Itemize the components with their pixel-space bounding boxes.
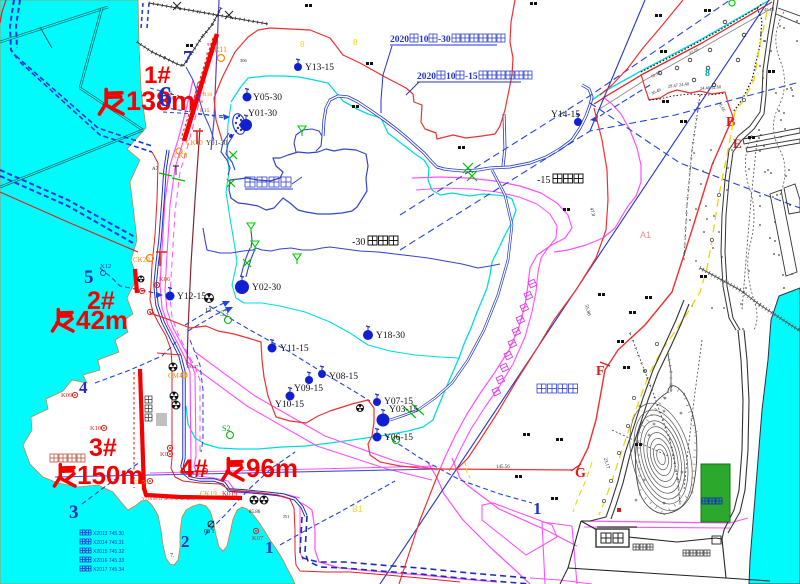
svg-text:-30: -30: [438, 35, 451, 45]
svg-text:K07: K07: [252, 535, 264, 542]
svg-text:X2015 745.32: X2015 745.32: [93, 549, 124, 555]
svg-text:96m: 96m: [246, 453, 298, 483]
svg-text:S2: S2: [222, 424, 230, 433]
svg-text:K09: K09: [61, 392, 72, 399]
svg-text:-15: -15: [537, 175, 550, 186]
svg-text:Y10-15: Y10-15: [275, 400, 304, 410]
svg-text:306: 306: [240, 58, 248, 63]
svg-text:7.: 7.: [170, 553, 175, 559]
svg-text:Y12-15: Y12-15: [177, 292, 206, 302]
svg-text:Y09-15: Y09-15: [294, 384, 323, 394]
svg-text:8: 8: [705, 68, 710, 79]
svg-text:150.37: 150.37: [186, 364, 199, 369]
svg-text:Y06-15: Y06-15: [384, 433, 413, 443]
svg-text:145.56: 145.56: [496, 465, 510, 470]
svg-text:X2014 745.31: X2014 745.31: [93, 540, 124, 546]
svg-text:8: 8: [353, 38, 358, 47]
svg-text:R11: R11: [214, 45, 227, 54]
svg-text:A7: A7: [152, 167, 159, 172]
svg-text:1: 1: [265, 538, 274, 557]
svg-text:B1: B1: [352, 504, 363, 514]
svg-text:10: 10: [446, 72, 456, 82]
svg-text:08 1: 08 1: [204, 529, 215, 535]
svg-text:X2013 745.30: X2013 745.30: [93, 531, 124, 537]
svg-text:K10: K10: [90, 425, 101, 432]
svg-text:2: 2: [181, 532, 190, 551]
svg-text:X2016 745.33: X2016 745.33: [93, 558, 124, 564]
svg-text:85.86: 85.86: [249, 510, 261, 515]
svg-text:Y08-15: Y08-15: [329, 372, 358, 382]
svg-text:K0: K0: [160, 451, 168, 458]
svg-text:F: F: [596, 364, 605, 379]
svg-text:-30: -30: [352, 237, 365, 248]
svg-text:A1: A1: [640, 230, 651, 240]
svg-text:Y13-15: Y13-15: [305, 63, 334, 73]
svg-text:V7 18 4A 4T 4B 49 4F 4D 52 50: V7 18 4A 4T 4B 49 4F 4D 52 50: [142, 496, 195, 501]
svg-text:8: 8: [300, 40, 305, 49]
svg-text:2020: 2020: [417, 72, 436, 82]
svg-text:5: 5: [84, 267, 94, 288]
svg-text:Y11-15: Y11-15: [280, 344, 309, 354]
svg-text:13: 13: [205, 307, 212, 314]
svg-text:X2017 745.34: X2017 745.34: [93, 567, 124, 573]
svg-text:Y03-15: Y03-15: [389, 405, 418, 415]
svg-text:2020: 2020: [390, 35, 409, 45]
svg-text:3#: 3#: [89, 434, 117, 462]
svg-text:-15: -15: [465, 72, 478, 82]
svg-text:R16: R16: [203, 92, 212, 98]
svg-text:6: 6: [158, 82, 172, 113]
svg-text:3: 3: [69, 502, 79, 523]
svg-text:CM49: CM49: [168, 372, 186, 380]
svg-text:150m: 150m: [77, 460, 144, 490]
svg-text:Y01-30: Y01-30: [206, 139, 228, 147]
svg-text:42m: 42m: [76, 305, 128, 335]
svg-text:Y18-30: Y18-30: [376, 331, 405, 341]
svg-text:J51: J51: [283, 514, 289, 519]
svg-text:K019: K019: [222, 490, 238, 498]
svg-text:E: E: [733, 136, 742, 151]
svg-text:CK10: CK10: [186, 139, 203, 147]
svg-text:4: 4: [79, 378, 88, 397]
svg-text:7: 7: [183, 47, 192, 67]
svg-text:10: 10: [419, 35, 429, 45]
svg-text:G: G: [575, 466, 586, 481]
svg-text:Y14-15: Y14-15: [551, 110, 580, 120]
svg-text:Y05-30: Y05-30: [253, 93, 282, 103]
svg-text:45.18: 45.18: [764, 7, 775, 12]
svg-text:K15: K15: [200, 108, 210, 114]
svg-text:Y02-30: Y02-30: [252, 283, 281, 293]
svg-text:CK19: CK19: [200, 490, 217, 498]
svg-text:X12: X12: [100, 263, 111, 270]
svg-text:4#: 4#: [180, 455, 208, 483]
svg-text:K06: K06: [159, 276, 171, 283]
svg-text:1: 1: [533, 499, 542, 518]
svg-text:S3: S3: [220, 309, 228, 318]
svg-text:Y01-30: Y01-30: [248, 109, 277, 119]
